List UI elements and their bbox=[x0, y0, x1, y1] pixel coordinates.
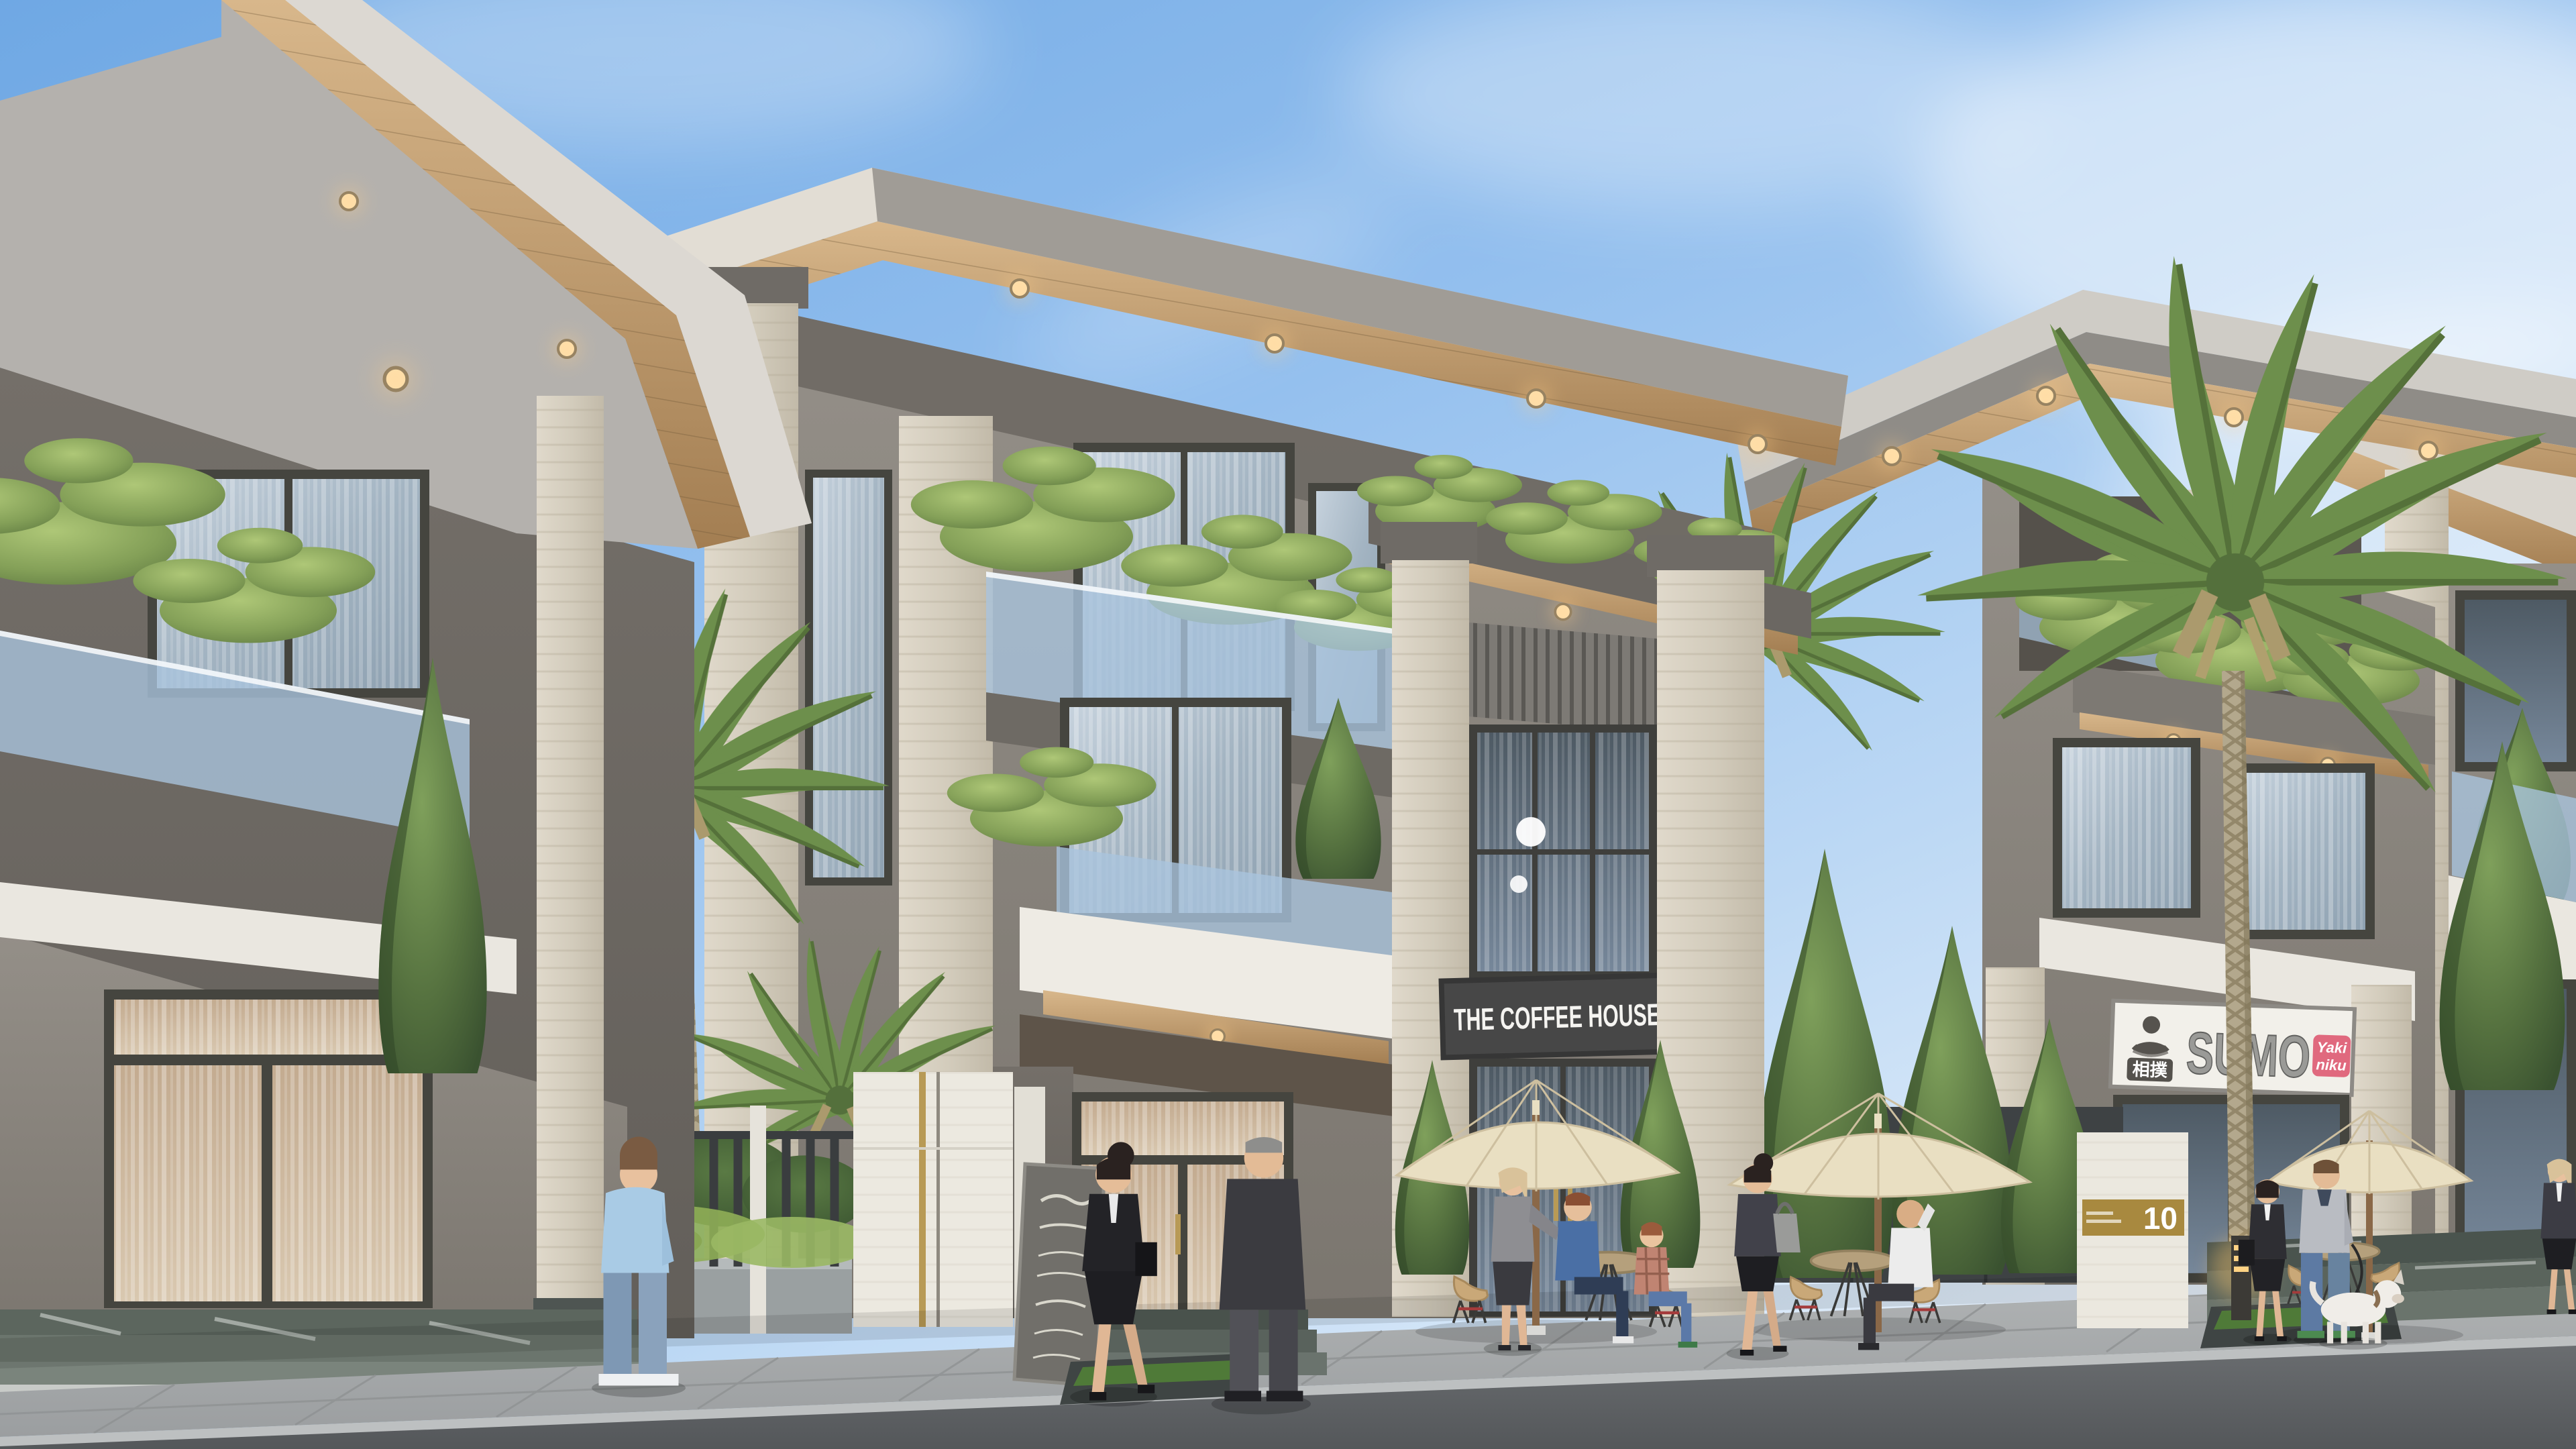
address-plaque: 10 bbox=[2082, 1199, 2184, 1236]
pendant-lamp bbox=[1510, 875, 1527, 893]
address-pillar: 10 bbox=[2077, 1132, 2188, 1328]
coffee-sign: THE COFFEE HOUSE bbox=[1442, 975, 1673, 1058]
sumo-jp-text: 相撲 bbox=[2132, 1059, 2168, 1081]
render-canvas: 相撲 SUMO Yaki niku bbox=[0, 0, 2576, 1449]
scene: 相撲 SUMO Yaki niku bbox=[0, 0, 2576, 1449]
coffee-sign-text: THE COFFEE HOUSE bbox=[1453, 997, 1660, 1037]
gate-pillar bbox=[853, 1072, 1045, 1327]
yakiniku-line1: Yaki bbox=[2316, 1038, 2347, 1057]
plaque-number: 10 bbox=[2143, 1201, 2178, 1236]
pendant-lamp bbox=[1516, 817, 1546, 847]
yakiniku-line2: niku bbox=[2316, 1056, 2347, 1074]
door-handle bbox=[1175, 1214, 1181, 1254]
ivy bbox=[711, 1217, 872, 1268]
